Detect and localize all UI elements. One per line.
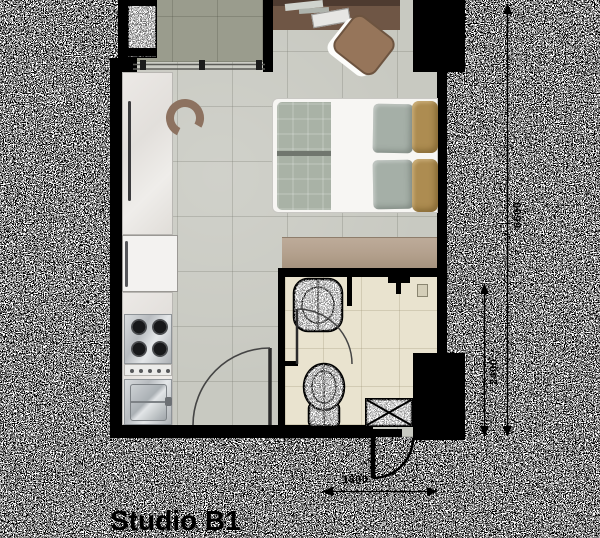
bathroom-door <box>193 348 270 425</box>
sliding-door <box>133 60 265 70</box>
dimension-label-entry-depth: 2400 <box>488 359 500 385</box>
entrance-door <box>373 437 413 478</box>
bar-stool <box>165 98 205 138</box>
door-handle-icon <box>256 60 262 70</box>
dimension-line-entry-width <box>322 487 438 496</box>
dimension-label-total-depth: 6600 <box>512 202 524 228</box>
dimension-label-entry-width: 1800 <box>342 474 368 486</box>
plan-title: Studio B1 <box>110 505 241 537</box>
door-handle-icon <box>140 60 146 70</box>
dimension-line-total-depth <box>503 3 512 437</box>
door-handle-icon <box>199 60 205 70</box>
wc-door <box>297 309 352 364</box>
annotation-overlay <box>0 0 600 538</box>
floorplan-image: 6600 2400 1800 Studio B1 <box>0 0 600 538</box>
